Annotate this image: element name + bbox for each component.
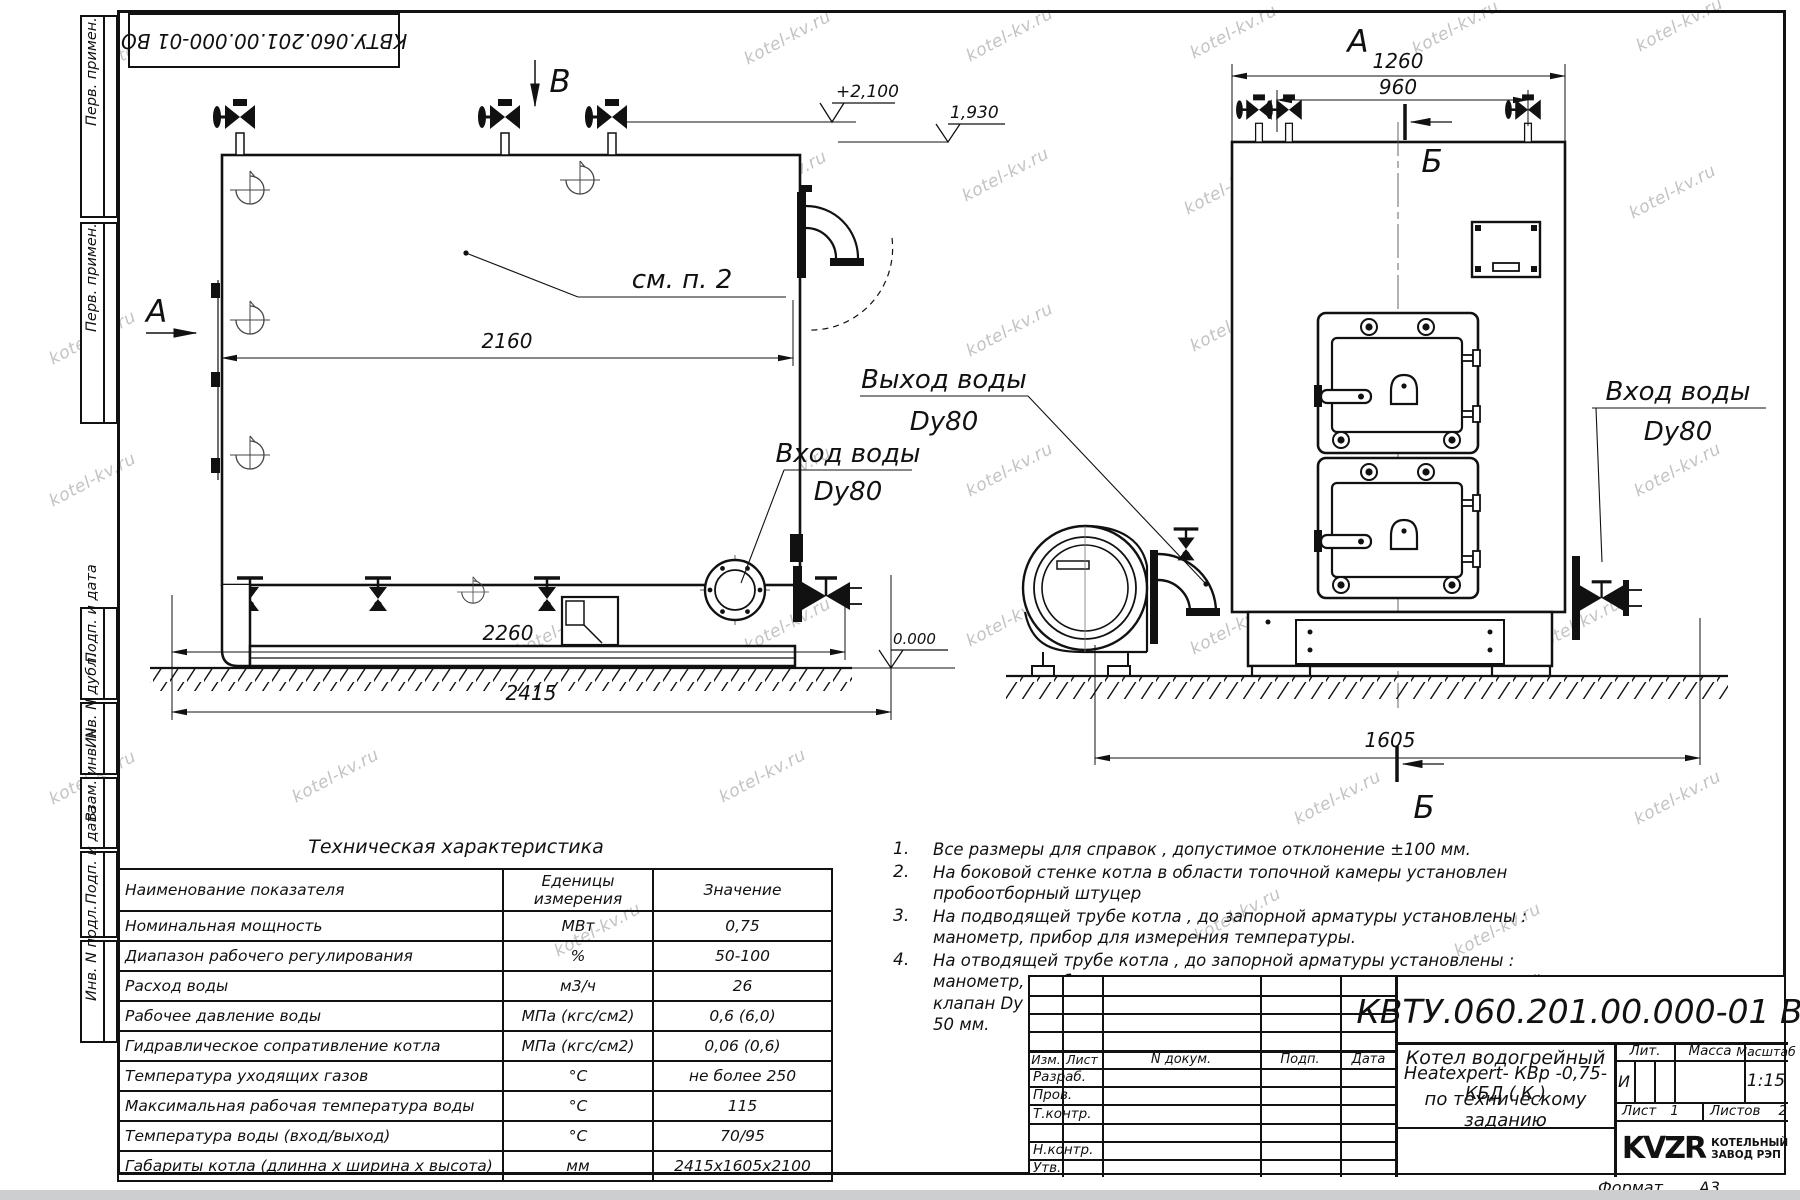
- col-izm: Изм.: [1030, 1050, 1062, 1068]
- outlet-valve-icon: [1174, 529, 1199, 560]
- tech-table-header-row: Наименование показателя Еденицыизмерения…: [118, 869, 832, 911]
- door-swing-arc: [808, 238, 893, 330]
- inspection-panel: [1472, 222, 1540, 277]
- bolt-icon: [1444, 577, 1460, 593]
- dim-2260: 2260: [483, 621, 534, 645]
- row-nkontr: Н.контр.: [1033, 1141, 1103, 1159]
- list-cell: Лист1: [1622, 1102, 1702, 1120]
- col-header-name: Наименование показателя: [118, 869, 503, 911]
- valve-top-icon: [585, 99, 627, 155]
- tech-table-title: Техническая характеристика: [118, 836, 794, 858]
- col-ndokum: N докум.: [1102, 1050, 1260, 1068]
- col-data: Дата: [1340, 1050, 1397, 1068]
- elevation-2100: +2,100: [836, 82, 899, 102]
- front-inlet-valve: [1572, 556, 1642, 640]
- table-row: Температура уходящих газов°Сне более 250: [118, 1061, 832, 1091]
- outlet-label-title: Выход воды: [861, 365, 1027, 395]
- flue-outlet: [797, 185, 893, 330]
- outlet-label-dn: Dy80: [910, 407, 979, 437]
- callout-see-p2: см. п. 2: [632, 265, 733, 295]
- valve-top-icon: [1236, 94, 1272, 142]
- view-label-a-front: А: [1345, 24, 1368, 60]
- table-row: Номинальная мощностьМВт0,75: [118, 911, 832, 941]
- bolt-icon: [1361, 464, 1377, 480]
- masshtab-value: 1:15: [1744, 1060, 1788, 1102]
- inlet-label-title: Вход воды: [775, 439, 920, 469]
- org-name: КОТЕЛЬНЫЙ ЗАВОД РЭП: [1711, 1137, 1788, 1161]
- col-header-unit: Еденицыизмерения: [503, 869, 653, 911]
- door-latch-icon: [1391, 520, 1417, 549]
- blower-fan: [1023, 526, 1147, 676]
- row-utv: Утв.: [1033, 1159, 1103, 1177]
- table-row: Максимальная рабочая температура воды°С1…: [118, 1091, 832, 1121]
- table-row: Рабочее давление водыМПа (кгс/см2)0,6 (6…: [118, 1001, 832, 1031]
- skid-left-leg: [222, 585, 250, 666]
- dim-2160: 2160: [482, 329, 533, 353]
- table-row: Расход водым3/ч26: [118, 971, 832, 1001]
- front-base: [1248, 612, 1552, 676]
- listov-cell: Листов2: [1710, 1102, 1788, 1120]
- bolt-icon: [1333, 577, 1349, 593]
- valve-top-icon: [1505, 94, 1541, 142]
- lower-door: [1314, 458, 1480, 598]
- front-view: 1260 960 1605 А Б Б Выход воды Dy80 Вход: [860, 24, 1766, 826]
- note-item: 1.Все размеры для справок , допустимое о…: [893, 839, 1571, 861]
- d im-2415: 2415: [506, 681, 557, 705]
- bolt-icon: [1444, 432, 1460, 448]
- table-row: Гидравлическое сопративление котлаМПа (к…: [118, 1031, 832, 1061]
- col-header-value: Значение: [653, 869, 832, 911]
- row-tkontr: Т.контр.: [1033, 1104, 1103, 1123]
- doc-number: КВТУ.060.201.00.000-01 ВО: [1397, 981, 1788, 1041]
- col-podp: Подп.: [1260, 1050, 1340, 1068]
- logo-cell: KVZR КОТЕЛЬНЫЙ ЗАВОД РЭП: [1616, 1120, 1788, 1177]
- drawing-sheet: kotel-kv.ru kotel-kv.ru kotel-kv.ru kote…: [0, 0, 1800, 1200]
- bolt-icon: [1333, 432, 1349, 448]
- note-item: 2.На боковой стенке котла в области топо…: [893, 862, 1571, 905]
- front-inlet-label-dn: Dy80: [1644, 417, 1713, 447]
- section-label-b-bottom: Б: [1413, 790, 1434, 826]
- note-item: 3.На подводящей трубе котла , до запорно…: [893, 906, 1571, 949]
- elevation-1930: 1,930: [950, 103, 999, 123]
- title-block: Изм. Лист N докум. Подп. Дата Разраб. Пр…: [1028, 975, 1786, 1175]
- door-latch-icon: [1391, 375, 1417, 404]
- lit-value: И: [1614, 1060, 1634, 1102]
- view-label-a-side: А: [144, 294, 167, 330]
- view-label-v: В: [549, 64, 570, 100]
- product-name-line3: по техническому заданию: [1399, 1097, 1612, 1123]
- dim-1605: 1605: [1365, 728, 1416, 752]
- massa-header: Масса: [1676, 1042, 1744, 1060]
- front-inlet-label-title: Вход воды: [1605, 377, 1750, 407]
- section-label-b-top: Б: [1421, 144, 1442, 180]
- ground-hatch: [150, 669, 852, 691]
- dim-1260: 1260: [1373, 49, 1424, 73]
- elevation-0000: 0.000: [893, 630, 936, 648]
- logo-text: KVZR: [1622, 1131, 1705, 1166]
- table-row: Диапазон рабочего регулирования%50-100: [118, 941, 832, 971]
- tech-table: Наименование показателя Еденицыизмерения…: [117, 868, 833, 1182]
- lit-header: Лит.: [1616, 1042, 1674, 1060]
- bolt-icon: [1361, 319, 1377, 335]
- side-outlet-valve-icon: [802, 578, 850, 610]
- masshtab-header: Масштаб: [1744, 1042, 1788, 1060]
- valve-top-icon: [213, 99, 255, 155]
- outlet-elbow: [1150, 529, 1220, 644]
- bolt-icon: [1418, 319, 1434, 335]
- dim-960: 960: [1379, 75, 1417, 99]
- boiler-body-side: [222, 155, 800, 585]
- row-razrab: Разраб.: [1033, 1068, 1103, 1086]
- bolt-icon: [1418, 464, 1434, 480]
- table-row: Температура воды (вход/выход)°С70/95: [118, 1121, 832, 1151]
- bottom-gray-bar: [0, 1190, 1800, 1200]
- inlet-label-dn: Dy80: [814, 477, 883, 507]
- valve-top-icon: [478, 99, 520, 155]
- skid-beam: [250, 646, 795, 666]
- ground-hatch: [1006, 677, 1728, 699]
- table-row: Габариты котла (длинна х ширина х высота…: [118, 1151, 832, 1181]
- upper-door: [1314, 313, 1480, 453]
- row-prov: Пров.: [1033, 1086, 1103, 1104]
- col-list: Лист: [1062, 1050, 1102, 1068]
